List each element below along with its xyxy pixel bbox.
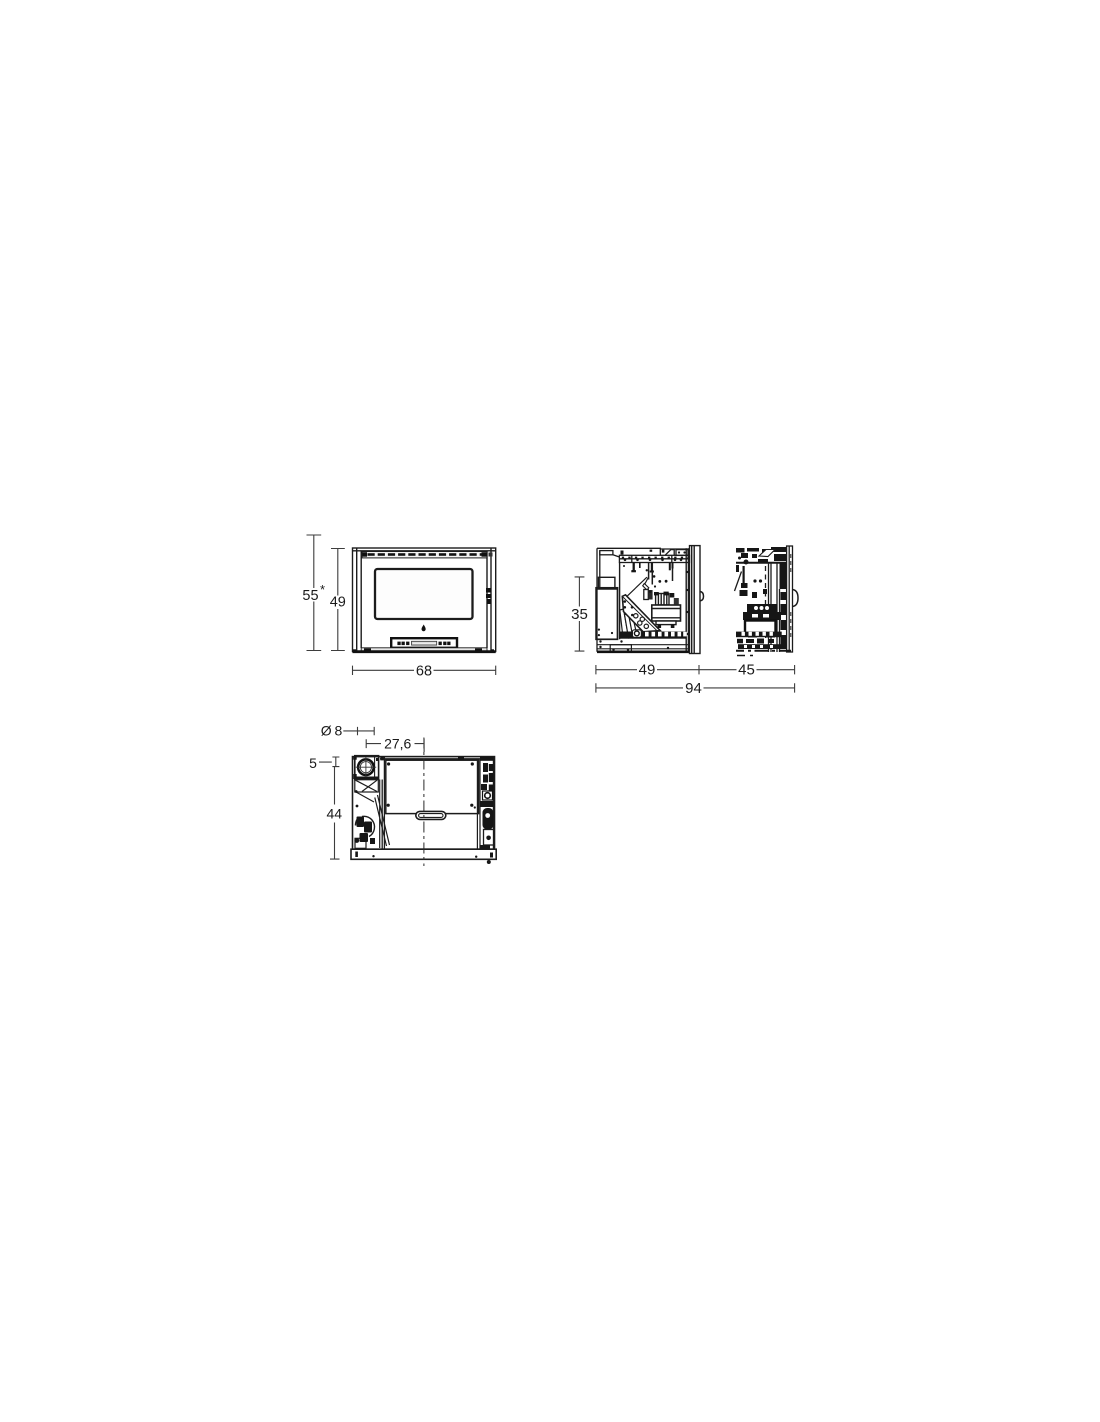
svg-text:5: 5 [309, 755, 317, 771]
svg-text:44: 44 [327, 806, 343, 822]
svg-text:Ø 8: Ø 8 [321, 722, 343, 738]
svg-text:68: 68 [416, 663, 432, 679]
svg-text:49: 49 [639, 662, 656, 679]
svg-text:*: * [320, 582, 325, 597]
svg-text:45: 45 [738, 662, 755, 679]
svg-text:49: 49 [330, 595, 346, 611]
svg-text:27,6: 27,6 [384, 736, 411, 752]
svg-text:55: 55 [302, 588, 318, 604]
svg-text:94: 94 [685, 680, 702, 697]
svg-text:35: 35 [571, 606, 588, 623]
